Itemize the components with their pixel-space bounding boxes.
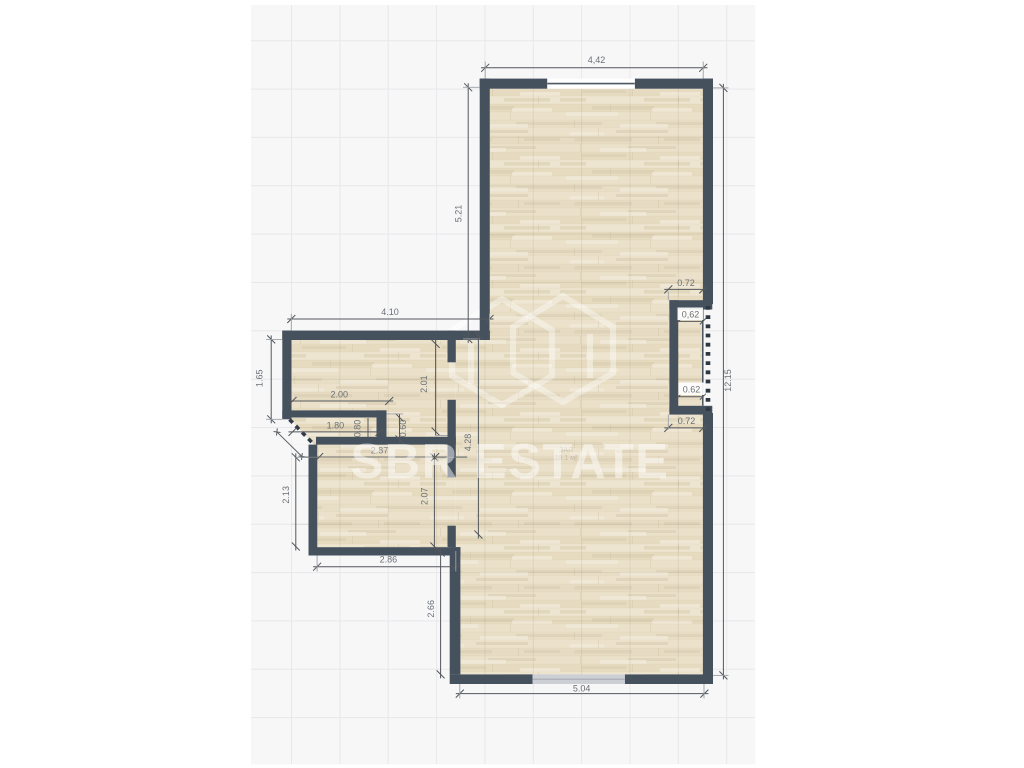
svg-text:2.07: 2.07: [420, 487, 430, 505]
svg-text:1.80: 1.80: [327, 420, 345, 430]
svg-text:4,42: 4,42: [588, 55, 606, 65]
svg-text:0.62: 0.62: [683, 385, 701, 395]
svg-text:5.21: 5.21: [454, 205, 464, 223]
svg-text:1.65: 1.65: [255, 370, 265, 388]
svg-text:12.15: 12.15: [723, 369, 733, 392]
svg-text:0.72: 0.72: [677, 278, 695, 288]
svg-text:4.10: 4.10: [381, 307, 399, 317]
svg-text:2.13: 2.13: [281, 486, 291, 504]
svg-text:5.04: 5.04: [573, 683, 591, 693]
svg-text:2.00: 2.00: [331, 389, 349, 399]
svg-text:0,62: 0,62: [682, 310, 700, 320]
svg-text:2.66: 2.66: [426, 600, 436, 618]
svg-text:SBR ESTATE: SBR ESTATE: [350, 435, 669, 489]
svg-text:0.72: 0.72: [678, 416, 696, 426]
svg-text:2.01: 2.01: [419, 375, 429, 393]
svg-text:2.86: 2.86: [380, 555, 398, 565]
